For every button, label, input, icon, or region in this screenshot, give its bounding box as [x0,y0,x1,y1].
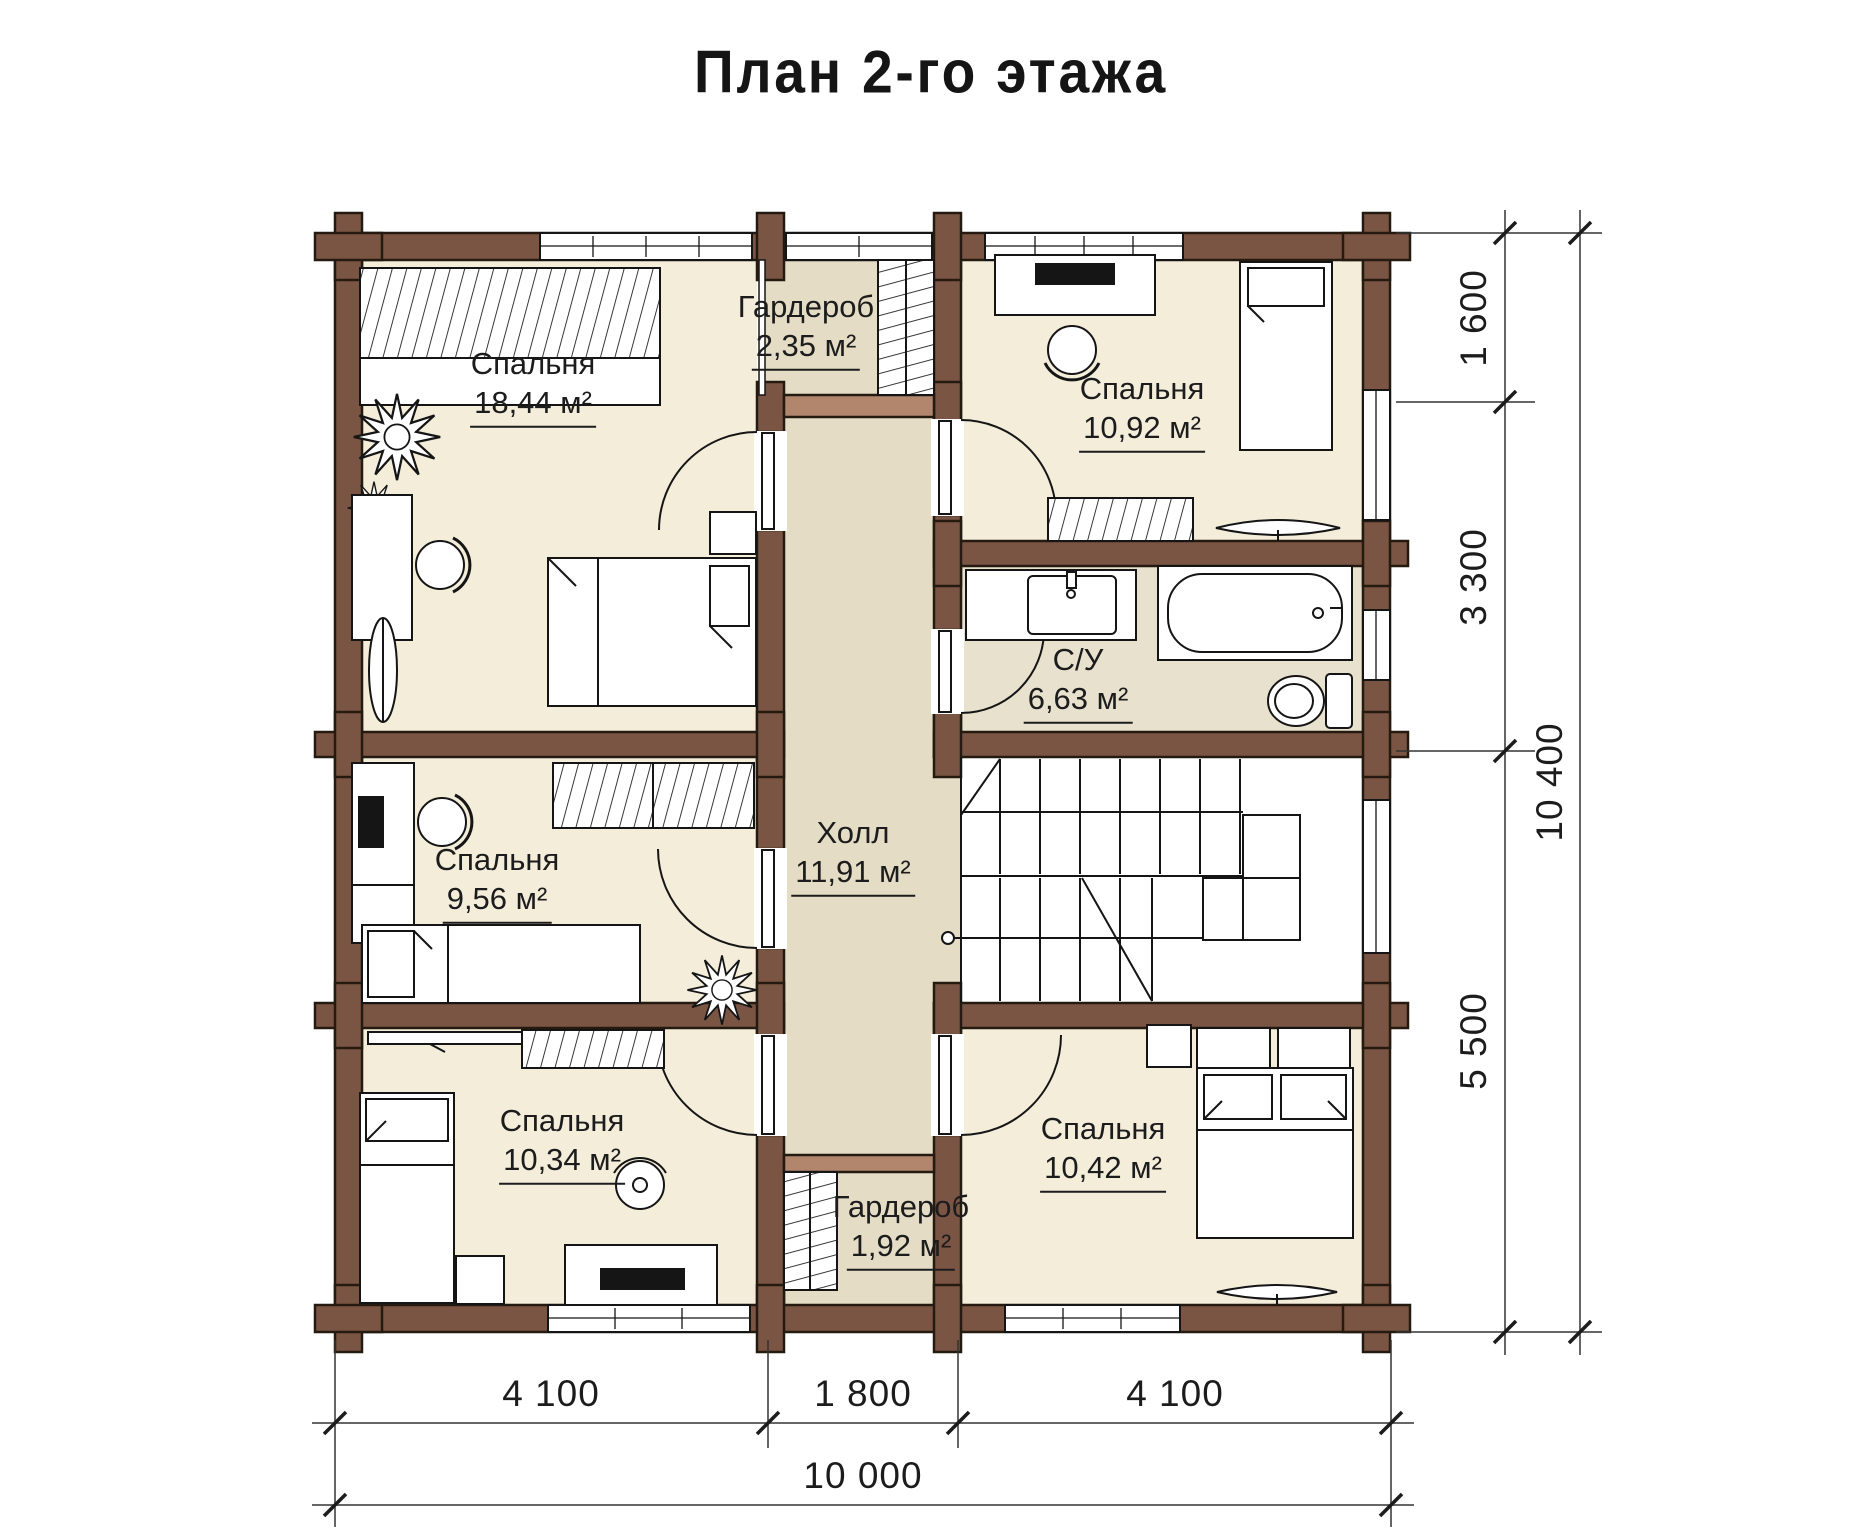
dresser-icon [1048,498,1193,541]
single-bed-icon [360,1093,454,1303]
chair-icon [416,538,470,592]
desk-icon [995,255,1155,315]
sink-icon [966,570,1136,640]
floor-plan-canvas: План 2-го этажа [0,0,1858,1536]
side-table-icon [456,1256,504,1304]
room-label-hall: Холл 11,91 м² [791,814,915,897]
bathtub-icon [1158,566,1352,660]
room-label-bedroom-10-42: Спальня 10,42 м² [1040,1110,1166,1193]
dim-bottom-4100-left: 4 100 [502,1373,600,1415]
desk-icon [352,763,414,943]
dim-right-5500: 5 500 [1453,992,1495,1090]
single-bed-icon [362,925,640,1003]
room-label-wardrobe-bottom: Гардероб 1,92 м² [833,1188,969,1271]
room-label-bedroom-10-92: Спальня 10,92 м² [1079,370,1205,453]
dim-right-1600: 1 600 [1453,269,1495,367]
room-label-bedroom-9-56: Спальня 9,56 м² [435,841,560,924]
dim-bottom-1800: 1 800 [814,1373,912,1415]
single-bed-icon [1240,262,1332,450]
closet-icon [553,763,754,828]
floor-plan-svg [0,0,1858,1536]
room-label-bathroom: С/У 6,63 м² [1024,641,1133,724]
toilet-icon [1268,674,1352,728]
room-label-wardrobe-top: Гардероб 2,35 м² [738,288,874,371]
dim-bottom-4100-right: 4 100 [1126,1373,1224,1415]
dim-right-total: 10 400 [1529,722,1571,841]
closet-icon [784,1172,837,1290]
closet-icon [522,1030,664,1068]
room-label-bedroom-18-44: Спальня 18,44 м² [470,345,596,428]
dim-right-3300: 3 300 [1453,528,1495,626]
desk-icon [565,1245,717,1305]
closet-icon [878,260,934,395]
dim-bottom-total: 10 000 [803,1455,922,1497]
room-label-bedroom-10-34: Спальня 10,34 м² [499,1102,625,1185]
mirror-icon [369,618,397,722]
